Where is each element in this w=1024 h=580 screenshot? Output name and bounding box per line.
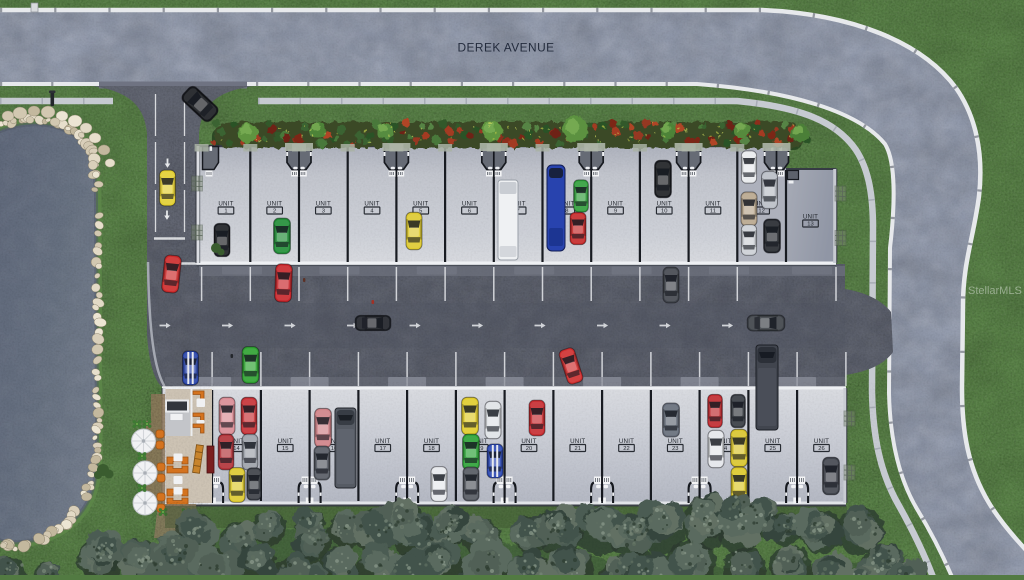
svg-text:26: 26 xyxy=(818,446,824,452)
svg-text:DEREK AVENUE: DEREK AVENUE xyxy=(457,41,554,55)
svg-text:14: 14 xyxy=(233,446,240,452)
svg-text:9: 9 xyxy=(614,209,617,215)
svg-text:6: 6 xyxy=(468,209,471,215)
svg-text:StellarMLS: StellarMLS xyxy=(968,285,1022,297)
svg-text:11: 11 xyxy=(710,209,716,215)
svg-text:21: 21 xyxy=(575,446,581,452)
svg-text:8: 8 xyxy=(565,209,568,215)
svg-text:17: 17 xyxy=(380,446,386,452)
svg-text:12: 12 xyxy=(758,209,764,215)
svg-text:15: 15 xyxy=(282,446,288,452)
svg-text:1: 1 xyxy=(224,209,227,215)
svg-text:25: 25 xyxy=(770,446,776,452)
svg-text:20: 20 xyxy=(526,446,532,452)
svg-text:2: 2 xyxy=(273,209,276,215)
svg-text:13: 13 xyxy=(807,222,813,228)
svg-text:23: 23 xyxy=(672,446,678,452)
svg-text:10: 10 xyxy=(661,209,667,215)
svg-text:3: 3 xyxy=(322,209,325,215)
svg-text:22: 22 xyxy=(623,446,629,452)
svg-text:18: 18 xyxy=(428,446,434,452)
